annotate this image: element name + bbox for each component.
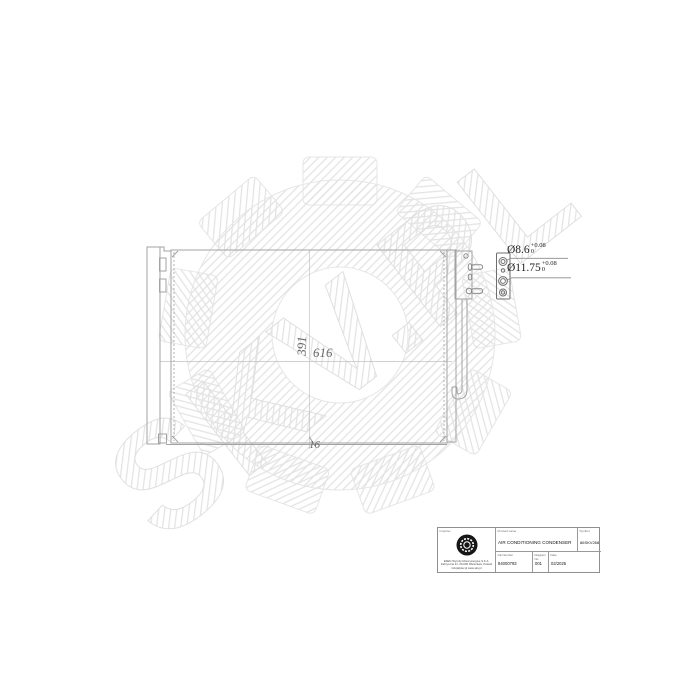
date-label: Date <box>551 553 557 557</box>
page: { "watermark": { "text": "SKV.PL" }, "dr… <box>0 0 700 700</box>
side-pipe <box>452 299 467 399</box>
dimension-core-depth: 16 <box>309 439 320 451</box>
symbol-label: Symbol <box>580 529 590 533</box>
importer-address: ESEN Wyroby Motoryzacyjne S.K.A. Fabrycz… <box>438 560 495 570</box>
symbol-value: 86SKV268 <box>580 540 599 545</box>
diagram-no-label: Diagram No. <box>535 553 549 561</box>
dimension-port-small-value: Ø8.6 <box>507 245 530 256</box>
receiver-drier <box>147 247 171 444</box>
dimension-port-large-tolerance: +0.08 0 <box>542 261 557 274</box>
title-block: Importer ESEN Wyroby Motoryzacyjne S.K.A… <box>437 527 600 573</box>
dimension-port-small-tolerance: +0.08 0 <box>531 243 546 256</box>
title-block-date-cell: Date 02/2025 <box>549 552 601 572</box>
dimension-port-large-value: Ø11.75 <box>507 263 541 274</box>
dimension-core-width: 616 <box>313 345 333 361</box>
product-name-value: AIR CONDITIONING CONDENSER <box>498 540 572 545</box>
diagram-no-value: 001 <box>535 561 542 566</box>
dimension-port-large: Ø11.75 +0.08 0 <box>507 263 557 274</box>
dimension-core-height: 391 <box>294 336 310 356</box>
title-block-diagram-no-cell: Diagram No. 001 <box>533 552 549 572</box>
port-flange-view <box>497 253 572 299</box>
title-block-symbol-cell: Symbol 86SKV268 <box>578 528 601 552</box>
brand-logo-icon <box>456 534 478 556</box>
title-block-importer-cell: Importer ESEN Wyroby Motoryzacyjne S.K.A… <box>438 528 496 572</box>
ce-number-label: CE Number <box>498 553 514 557</box>
title-block-product-cell: Product name AIR CONDITIONING CONDENSER <box>496 528 578 552</box>
condenser-drawing <box>0 0 700 700</box>
fitting-ports <box>464 254 483 294</box>
dimension-port-small: Ø8.6 +0.08 0 <box>507 245 546 256</box>
date-value: 02/2025 <box>551 561 566 566</box>
title-block-ce-number-cell: CE Number 84000793 <box>496 552 533 572</box>
importer-label: Importer <box>440 529 451 533</box>
ce-number-value: 84000793 <box>498 561 517 566</box>
product-name-label: Product name <box>498 529 517 533</box>
